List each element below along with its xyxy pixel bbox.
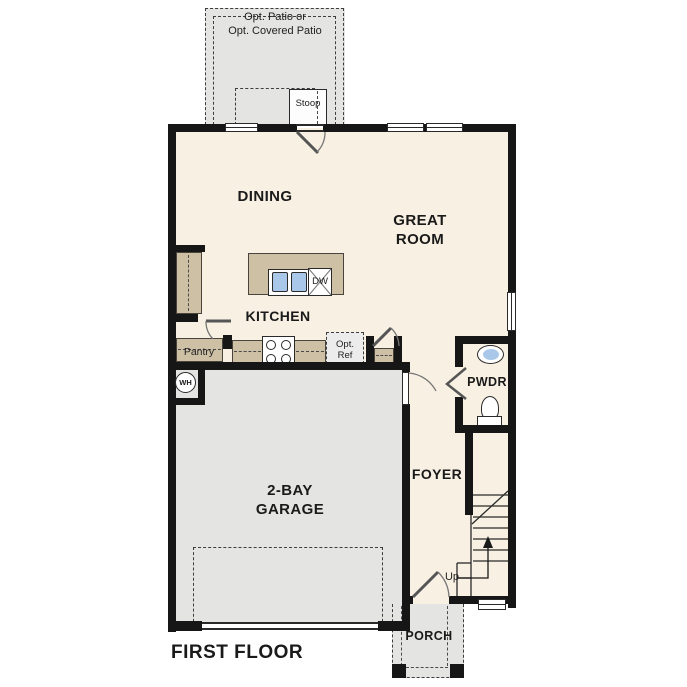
dw-label: DW [308,276,332,288]
plan-linework [0,0,687,687]
page-title: FIRST FLOOR [171,641,391,665]
patio-label: Opt. Patio or Opt. Covered Patio [205,11,345,39]
stair-break-line [472,491,508,524]
great-room-label: GREAT ROOM [380,212,460,250]
door-swing-arc [391,328,399,346]
up-arrow-icon [483,536,493,548]
door-swing-arc [206,321,213,339]
porch-label: PORCH [400,629,458,645]
pantry-label: Pantry [176,346,222,359]
door-swing-arc [317,132,325,152]
stoop-label: Stoop [289,98,327,110]
stairs [457,491,508,596]
floor-plan: Opt. Ref WH [0,0,687,687]
pwdr-label: PWDR [464,375,510,391]
door-leaf [297,132,318,153]
kitchen-label: KITCHEN [230,308,326,326]
up-label: Up [441,571,463,585]
door-leaf [373,328,391,346]
door-swing-arc [409,373,436,391]
garage-label: 2-BAY GARAGE [230,482,350,520]
foyer-label: FOYER [408,466,466,484]
dining-label: DINING [210,188,320,207]
door-leaf [413,572,438,597]
